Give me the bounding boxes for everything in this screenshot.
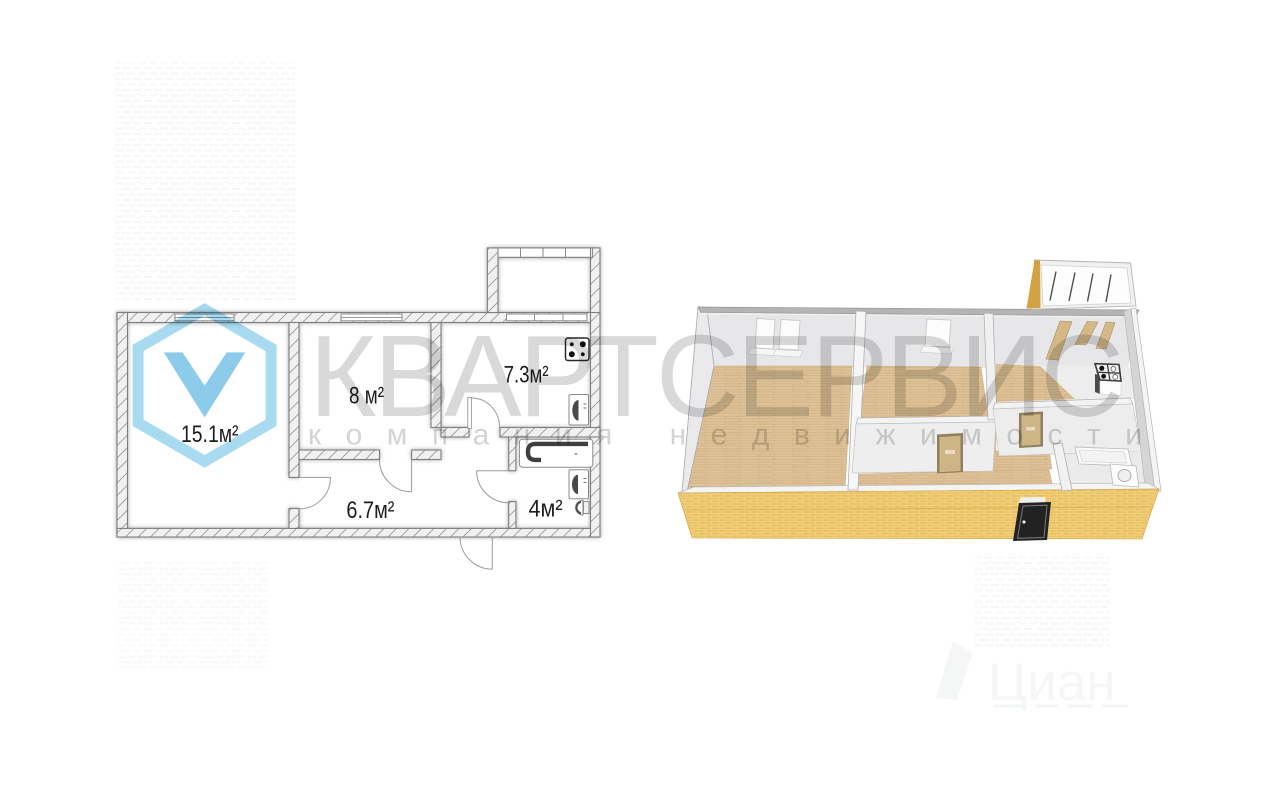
svg-text:Циан: Циан <box>988 653 1116 712</box>
svg-text:4м²: 4м² <box>529 496 563 523</box>
svg-text:к о м п а н и я н е д в и ж: к о м п а н и я н е д в и ж и м о с т и <box>308 419 1142 452</box>
svg-text:6.7м²: 6.7м² <box>346 497 394 524</box>
